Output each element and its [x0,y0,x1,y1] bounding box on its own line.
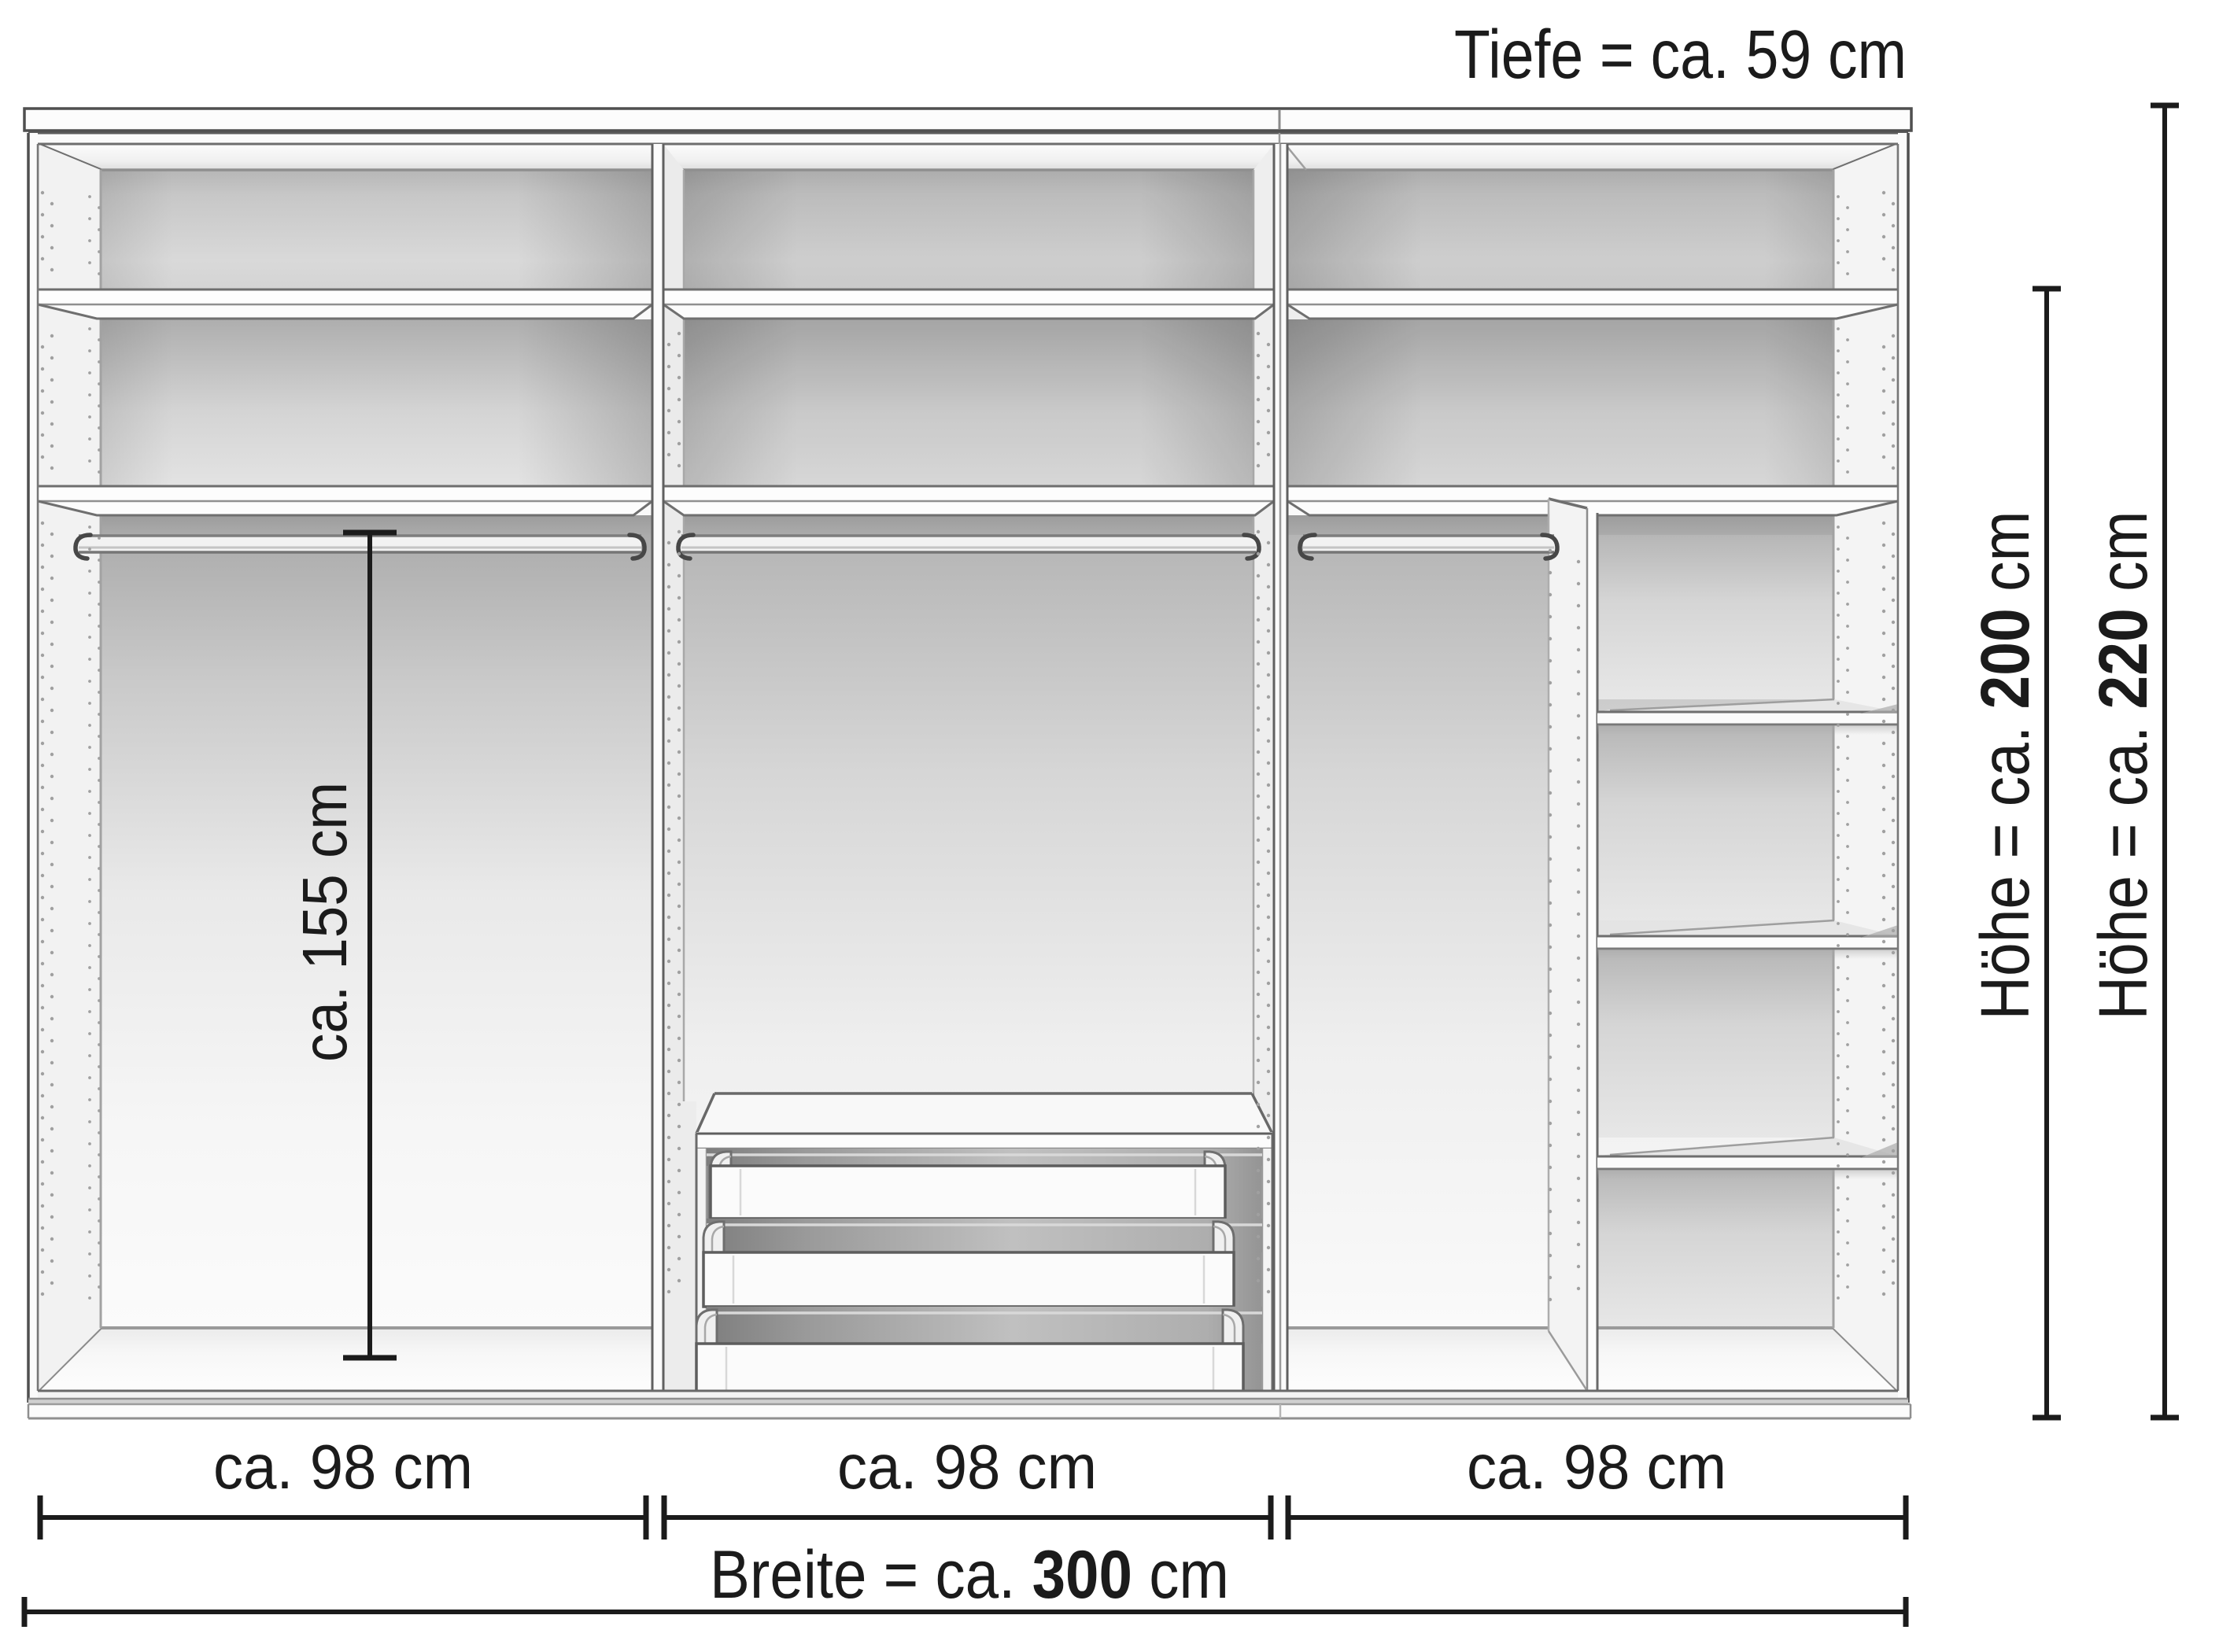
svg-text:ca. 98 cm: ca. 98 cm [1467,1432,1726,1502]
svg-text:Höhe = ca. 200 cm: Höhe = ca. 200 cm [1967,511,2044,1020]
svg-text:Höhe = ca. 220 cm: Höhe = ca. 220 cm [2085,511,2162,1020]
svg-text:Breite = ca. 300 cm: Breite = ca. 300 cm [710,1537,1229,1613]
svg-text:ca. 155 cm: ca. 155 cm [290,782,360,1062]
svg-text:ca. 98 cm: ca. 98 cm [837,1432,1097,1502]
svg-text:ca. 98 cm: ca. 98 cm [213,1432,473,1502]
svg-text:Tiefe = ca. 59 cm: Tiefe = ca. 59 cm [1454,17,1907,93]
